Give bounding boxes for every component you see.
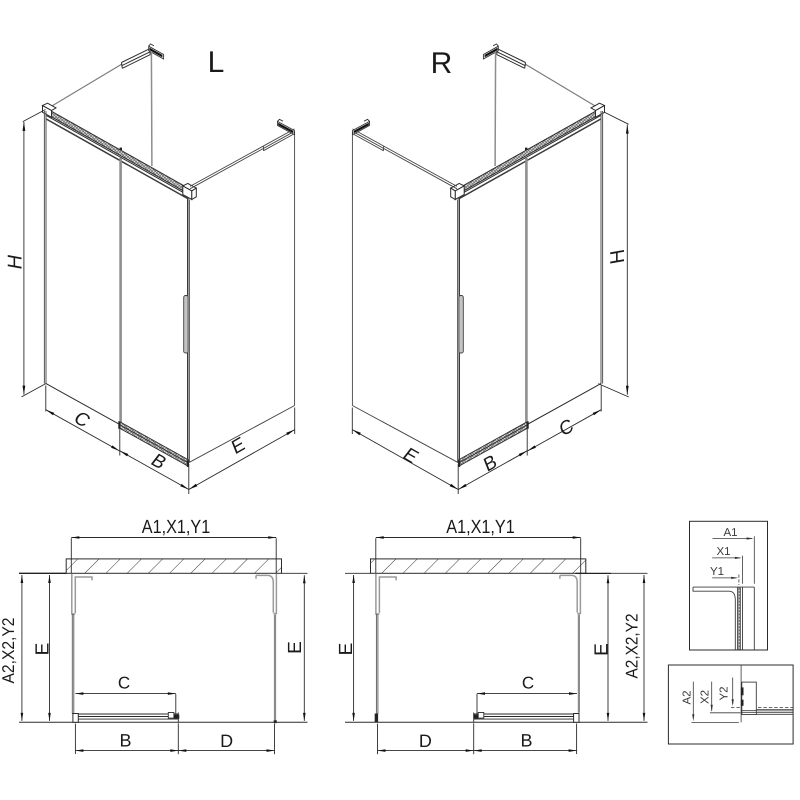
- svg-text:D: D: [220, 731, 233, 751]
- svg-text:R: R: [431, 47, 453, 80]
- svg-text:A2,X2,Y2: A2,X2,Y2: [0, 618, 18, 684]
- svg-text:E: E: [33, 643, 54, 656]
- svg-text:E: E: [336, 643, 357, 656]
- svg-text:C: C: [522, 673, 534, 692]
- svg-text:D: D: [419, 731, 432, 751]
- svg-text:X1: X1: [716, 546, 730, 558]
- svg-text:A1,X1,Y1: A1,X1,Y1: [446, 517, 515, 538]
- svg-text:Y1: Y1: [710, 566, 724, 578]
- svg-text:Y2: Y2: [719, 686, 731, 700]
- svg-text:X2: X2: [700, 690, 712, 704]
- svg-text:B: B: [520, 731, 532, 751]
- svg-text:L: L: [208, 46, 225, 79]
- svg-text:E: E: [592, 643, 613, 656]
- svg-text:A1,X1,Y1: A1,X1,Y1: [142, 517, 211, 538]
- svg-text:A1: A1: [723, 527, 737, 539]
- svg-text:B: B: [119, 731, 131, 751]
- svg-text:E: E: [285, 641, 306, 654]
- svg-text:C: C: [118, 673, 130, 692]
- svg-text:A2,X2,Y2: A2,X2,Y2: [622, 614, 641, 679]
- svg-text:A2: A2: [681, 690, 693, 704]
